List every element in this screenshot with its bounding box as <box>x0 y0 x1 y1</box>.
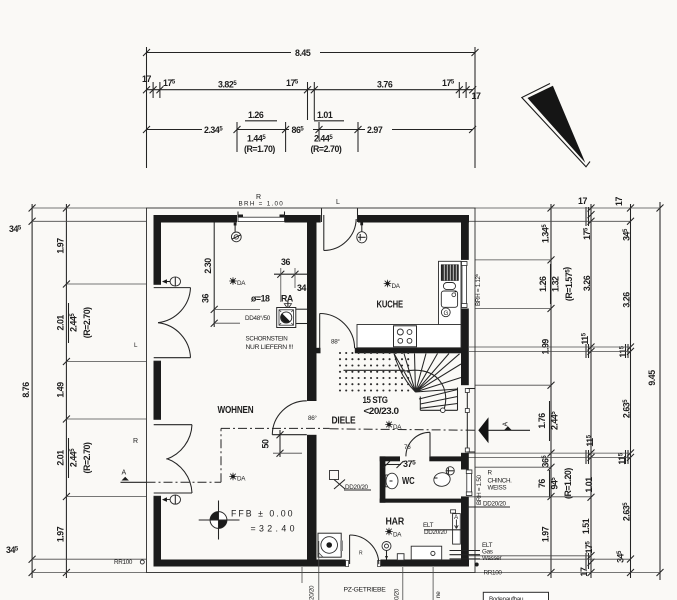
svg-text:1.01: 1.01 <box>584 477 594 493</box>
svg-text:(R=2.70): (R=2.70) <box>82 442 92 473</box>
svg-text:(R=2.70): (R=2.70) <box>311 144 342 154</box>
svg-text:(R=1.20): (R=1.20) <box>563 468 573 499</box>
svg-text:DA: DA <box>237 280 246 287</box>
svg-text:WC: WC <box>402 476 415 487</box>
svg-text:9.45: 9.45 <box>647 370 657 386</box>
svg-text:Bodenaufbau: Bodenaufbau <box>489 596 524 600</box>
svg-text:RR100: RR100 <box>114 559 133 566</box>
svg-text:76: 76 <box>537 479 547 488</box>
svg-text:1.97: 1.97 <box>56 238 66 254</box>
svg-text:76: 76 <box>404 444 411 451</box>
svg-text:WOHNEN: WOHNEN <box>218 405 254 416</box>
svg-text:2.97: 2.97 <box>367 125 383 135</box>
svg-text:2.01: 2.01 <box>56 315 66 331</box>
svg-text:36: 36 <box>281 257 290 267</box>
svg-text:50: 50 <box>261 439 271 448</box>
svg-text:DD48°/50: DD48°/50 <box>245 314 271 322</box>
svg-text:17: 17 <box>614 197 624 206</box>
svg-text:<20/23.0: <20/23.0 <box>364 406 400 416</box>
svg-text:L: L <box>336 199 340 206</box>
svg-text:8.76: 8.76 <box>21 382 31 398</box>
svg-text:FFB ± 0.00: FFB ± 0.00 <box>231 509 293 519</box>
svg-text:(R=2.70): (R=2.70) <box>82 307 92 338</box>
svg-text:20/20: 20/20 <box>309 585 316 600</box>
svg-text:3.76: 3.76 <box>377 80 393 90</box>
svg-text:36: 36 <box>201 294 211 303</box>
svg-text:ne: ne <box>435 591 442 598</box>
svg-text:86°: 86° <box>308 414 317 422</box>
svg-text:(R=1.70): (R=1.70) <box>244 144 275 154</box>
svg-text:RR100: RR100 <box>484 570 503 577</box>
svg-text:1.51: 1.51 <box>581 518 591 534</box>
svg-text:3.26: 3.26 <box>582 275 592 291</box>
svg-text:G: G <box>444 310 449 317</box>
svg-text:ELT: ELT <box>423 522 434 529</box>
svg-text:1.32: 1.32 <box>551 276 561 292</box>
svg-text:NUR LIEFERN !!!: NUR LIEFERN !!! <box>246 344 294 351</box>
svg-text:1.97: 1.97 <box>56 526 66 542</box>
svg-text:KUCHE: KUCHE <box>377 300 404 311</box>
svg-text:1.26: 1.26 <box>538 276 548 292</box>
svg-text:Wasser: Wasser <box>482 555 502 562</box>
svg-text:3.26: 3.26 <box>622 292 632 308</box>
svg-text:ø=18: ø=18 <box>251 294 270 304</box>
svg-text:17: 17 <box>579 567 589 576</box>
svg-text:A: A <box>503 422 510 427</box>
svg-text:1.99: 1.99 <box>541 339 551 355</box>
svg-text:0/20: 0/20 <box>394 588 401 600</box>
svg-text:HAR: HAR <box>386 517 405 528</box>
svg-text:WEISS: WEISS <box>488 485 507 492</box>
svg-text:BRH = 1.125: BRH = 1.125 <box>474 273 482 306</box>
svg-text:1.49: 1.49 <box>56 382 66 398</box>
svg-text:17: 17 <box>578 196 587 206</box>
svg-text:34: 34 <box>297 283 306 293</box>
svg-text:DA: DA <box>237 476 246 483</box>
svg-text:1.26: 1.26 <box>248 110 264 120</box>
svg-text:DA: DA <box>393 532 402 539</box>
svg-text:CHINCH.: CHINCH. <box>488 478 513 485</box>
svg-text:DIELE: DIELE <box>332 416 356 427</box>
svg-text:15 STG: 15 STG <box>363 395 389 405</box>
svg-text:R: R <box>133 438 138 445</box>
svg-text:1.01: 1.01 <box>317 110 333 120</box>
svg-text:8.45: 8.45 <box>295 48 311 58</box>
svg-text:17: 17 <box>142 74 151 84</box>
svg-text:R: R <box>359 551 363 557</box>
svg-text:A: A <box>122 470 127 477</box>
svg-text:BRH = 1.00: BRH = 1.00 <box>239 201 284 208</box>
svg-text:SCHORNSTEIN: SCHORNSTEIN <box>246 336 289 343</box>
svg-text:BRH = 1.50: BRH = 1.50 <box>476 474 483 505</box>
svg-text:2.30: 2.30 <box>203 258 213 274</box>
svg-text:PZ-GETRIEBE: PZ-GETRIEBE <box>344 587 386 594</box>
svg-text:1.97: 1.97 <box>541 526 551 542</box>
svg-text:DD20/20: DD20/20 <box>483 501 507 508</box>
svg-text:1.76: 1.76 <box>537 413 547 429</box>
svg-text:88°: 88° <box>331 338 340 346</box>
svg-text:17: 17 <box>472 91 481 101</box>
svg-text:2.01: 2.01 <box>56 450 66 466</box>
svg-text:DA: DA <box>392 283 401 290</box>
